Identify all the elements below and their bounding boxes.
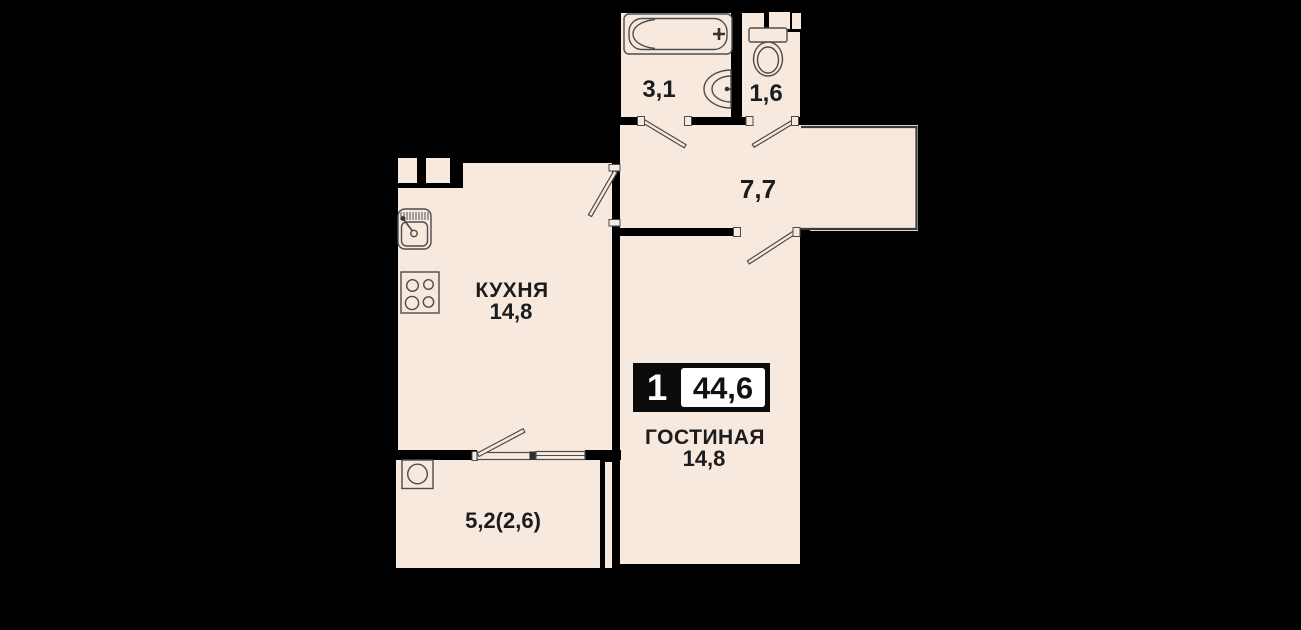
wall-gap-strip [605,462,612,568]
wall-kitchen-bottom-right [585,450,621,460]
kitchen-sink-icon [398,209,431,249]
bathtub-icon [624,14,732,54]
kitchen-vent-window [398,158,417,183]
badge-rooms-count: 1 [647,367,668,408]
wall-bath-bottom-mid [686,117,753,125]
bathroom-area-label: 3,1 [642,76,675,103]
toilet-vent-window [769,12,790,29]
room-hallway-wing [798,125,918,231]
living-area-label: 14,8 [683,446,726,471]
wall-kitchen-bottom-left [390,450,477,460]
badge-total-area: 44,6 [693,371,753,406]
unit-badge: 1 44,6 [633,363,770,412]
floor-plan: 1 44,6 3,1 1,6 7,7 КУХНЯ 14,8 ГОСТИНАЯ 1… [0,0,1301,630]
wall-living-top [612,228,741,236]
kitchen-vent-window [426,158,450,183]
toilet-vent-window [792,13,801,29]
hallway-area-label: 7,7 [740,174,776,204]
washing-machine-icon [402,460,433,489]
toilet-area-label: 1,6 [749,80,782,107]
floor-plan-canvas: 1 44,6 3,1 1,6 7,7 КУХНЯ 14,8 ГОСТИНАЯ 1… [0,0,1301,630]
balcony-area-label: 5,2(2,6) [465,508,541,533]
kitchen-area-label: 14,8 [490,299,533,324]
